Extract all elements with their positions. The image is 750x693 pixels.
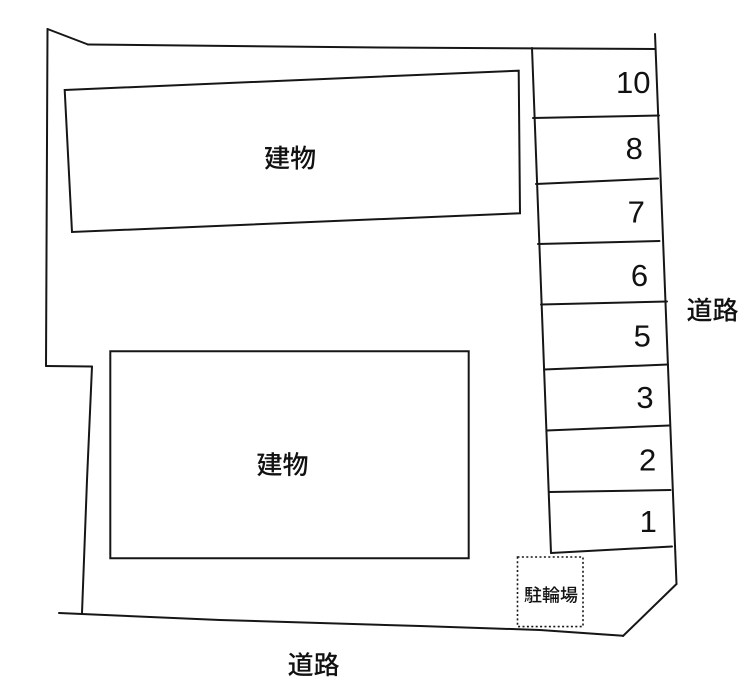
svg-text:6: 6 — [631, 258, 648, 293]
svg-text:7: 7 — [628, 194, 645, 229]
svg-text:10: 10 — [616, 65, 650, 100]
svg-text:1: 1 — [640, 504, 657, 539]
svg-text:8: 8 — [626, 131, 643, 166]
svg-text:5: 5 — [634, 319, 651, 354]
svg-text:3: 3 — [636, 380, 653, 415]
svg-text:2: 2 — [639, 442, 656, 477]
